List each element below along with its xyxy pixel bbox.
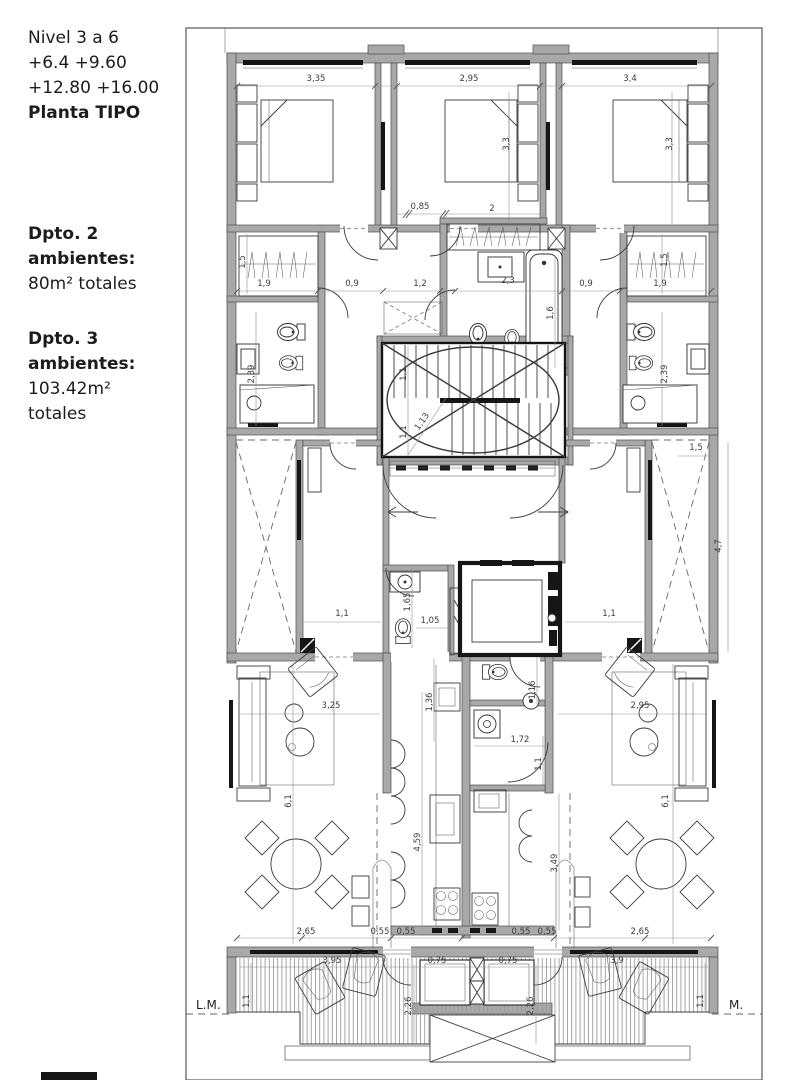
dimension-label: 1,1 <box>399 367 409 381</box>
hatch-column <box>470 958 484 1004</box>
dimension-label: 2,26 <box>404 997 414 1016</box>
dimension-label: 6,1 <box>284 794 294 808</box>
dimension-label: 3,25 <box>322 701 341 711</box>
dimension-label: 6,1 <box>661 794 671 808</box>
dimension-label: 2,26 <box>526 997 536 1016</box>
dimension-label: 2,65 <box>631 927 650 937</box>
corner-marker <box>300 638 315 653</box>
dimension-label: 1,1 <box>602 609 616 619</box>
property-line-label-left: L.M. <box>196 998 221 1012</box>
dimension-label: 1,5 <box>660 253 670 267</box>
corridor-mat <box>384 302 442 334</box>
closet-left <box>239 236 318 296</box>
dimension-label: 3,4 <box>623 74 637 84</box>
dimension-label: 0,9 <box>579 279 593 289</box>
dimension-label: 4,59 <box>413 833 423 852</box>
elevator <box>460 560 560 655</box>
floor-plan-drawing: 3,352,953,43,33,30,8521,51,51,90,91,22,3… <box>0 0 805 1080</box>
dimension-label: 1,1 <box>335 609 349 619</box>
dimension-label: 1,2 <box>413 279 427 289</box>
dimension-label: 3,9 <box>610 956 624 966</box>
laundry <box>474 710 500 738</box>
dimension-label: 1,16 <box>528 681 538 700</box>
stairwell <box>382 343 565 457</box>
bedroom-2 <box>445 85 538 201</box>
dimension-label: 1,1 <box>696 994 706 1008</box>
bedroom-1 <box>237 85 333 201</box>
dimension-label: 1,5 <box>238 255 248 269</box>
dimension-label: 0,85 <box>411 202 430 212</box>
dimension-label: 1,05 <box>421 616 440 626</box>
dimension-label: 3,3 <box>665 137 675 151</box>
light-well-left <box>236 440 296 652</box>
dimension-label: 3,49 <box>550 854 560 873</box>
dimension-label: 1,6 <box>546 306 556 320</box>
dimension-label: 0,55 <box>397 927 416 937</box>
dimension-label: 2,95 <box>631 701 650 711</box>
dimension-label: 1,1 <box>399 425 409 439</box>
dimension-label: 1,72 <box>511 735 530 745</box>
dimension-label: 2,39 <box>660 365 670 384</box>
dimension-label: 3,35 <box>307 74 326 84</box>
dimension-label: 0,75 <box>499 956 518 966</box>
light-well-right <box>652 440 709 652</box>
living-room-right <box>605 647 714 909</box>
dimension-label: 2,65 <box>297 927 316 937</box>
dimension-label: 0,55 <box>512 927 531 937</box>
dimension-label: 1,9 <box>257 279 271 289</box>
dimension-label: 1,9 <box>653 279 667 289</box>
dimension-label: 2 <box>489 204 494 214</box>
corner-marker <box>627 638 642 653</box>
dimension-label: 1,1 <box>242 994 252 1008</box>
dimension-label: 1,36 <box>425 693 435 712</box>
dimension-label: 1,5 <box>689 443 703 453</box>
dimension-label: 3,3 <box>502 137 512 151</box>
bedroom-3 <box>613 85 708 201</box>
balcony <box>186 948 762 1062</box>
dimension-label: 3,95 <box>323 956 342 966</box>
dimension-label: 2,3 <box>501 276 515 286</box>
site-boundary <box>186 28 762 1080</box>
dimension-label: 2,95 <box>460 74 479 84</box>
dimension-label: 4,7 <box>714 539 724 553</box>
dimension-label: 2,39 <box>247 365 257 384</box>
dimension-label: 0,55 <box>371 927 390 937</box>
dimension-label: 1,65 <box>403 593 413 612</box>
dimension-label: 1,1 <box>534 757 544 771</box>
property-line-label-right: M. <box>729 998 743 1012</box>
dimension-label: 0,9 <box>345 279 359 289</box>
dimension-label: 0,75 <box>428 956 447 966</box>
partial-logo <box>41 1072 97 1080</box>
dimension-label: 0,55 <box>538 927 557 937</box>
